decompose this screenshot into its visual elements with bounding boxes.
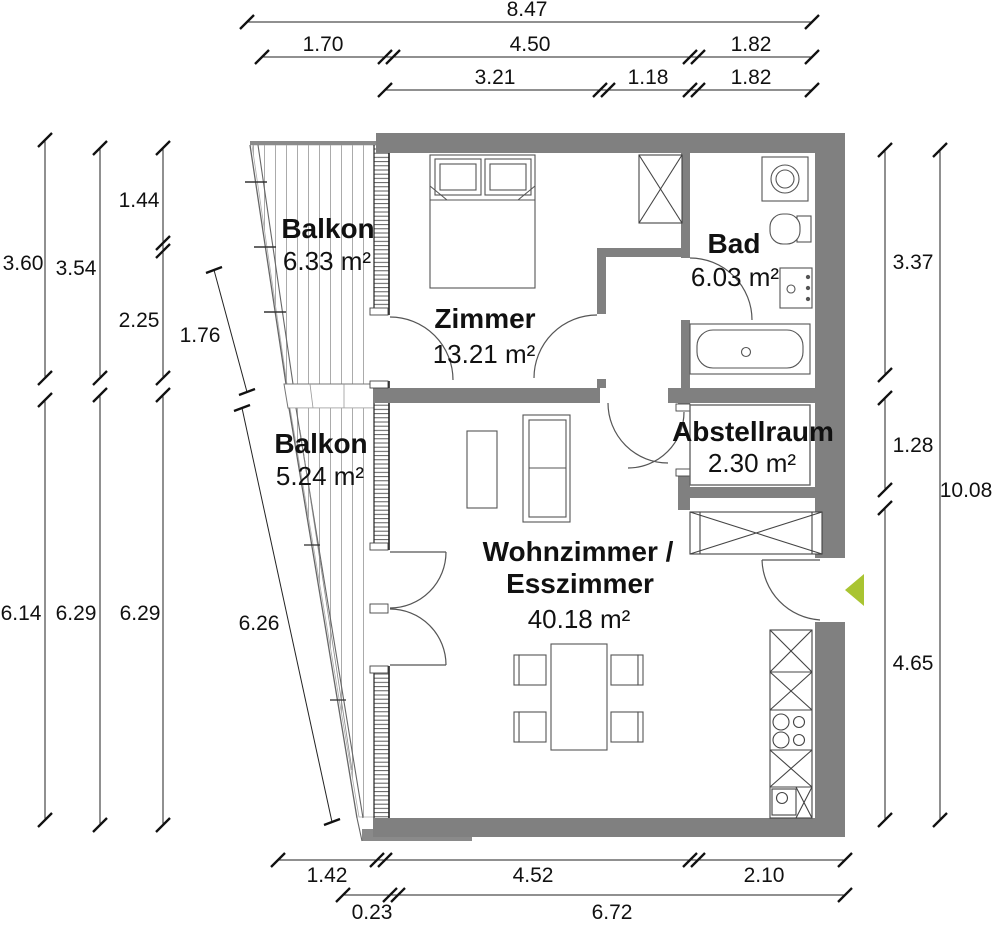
room-label-wohnzimmer-1: Wohnzimmer /	[483, 536, 674, 567]
floor-plan-drawing: Balkon 6.33 m² Zimmer 13.21 m² Bad 6.03 …	[0, 0, 999, 927]
stove-burner	[773, 732, 789, 748]
room-label-bad: Bad	[708, 228, 761, 259]
wall-hall-horizontal	[597, 248, 688, 257]
wall-bottom	[373, 818, 845, 837]
dim-left-4: 6.14	[1, 602, 42, 625]
hall-zimmer-door	[534, 315, 597, 378]
hall-living-door	[608, 403, 668, 463]
room-area-abstellraum: 2.30 m²	[708, 448, 796, 478]
washing-machine	[762, 157, 808, 201]
dim-left-6: 6.29	[120, 602, 161, 625]
french-door-upper	[390, 552, 446, 608]
room-area-bad: 6.03 m²	[691, 262, 779, 292]
dim-left-3b: 2.25	[119, 309, 160, 332]
wall-top	[376, 133, 845, 153]
dim-left-2: 3.54	[56, 257, 97, 280]
wall-abstellraum-bottom	[678, 487, 830, 498]
dim-left-diag-bottom: 6.26	[239, 612, 280, 635]
chair	[519, 712, 546, 742]
french-door-lower	[390, 609, 446, 665]
toilet	[770, 214, 811, 244]
side-table	[467, 431, 497, 508]
dining-set	[514, 644, 643, 750]
floor-plan-canvas: Balkon 6.33 m² Zimmer 13.21 m² Bad 6.03 …	[0, 0, 999, 927]
dim-top-r3-2: 1.82	[731, 66, 772, 89]
chair	[611, 655, 638, 685]
shaft-box	[639, 155, 682, 223]
dim-bottom-r1-0: 1.42	[307, 864, 348, 887]
room-label-balkon-top: Balkon	[281, 213, 374, 244]
dim-top-r2-0: 1.70	[303, 33, 344, 56]
dim-left-1: 3.60	[3, 252, 44, 275]
balcony-divider	[284, 384, 376, 408]
room-label-abstellraum: Abstellraum	[672, 416, 834, 447]
entrance-door	[762, 560, 820, 620]
dim-right-2: 1.28	[893, 434, 934, 457]
stove-burner	[773, 714, 789, 730]
dim-right-3: 4.65	[893, 652, 934, 675]
stove-burner	[794, 717, 805, 728]
stove-burner	[794, 735, 805, 746]
room-label-zimmer: Zimmer	[434, 303, 535, 334]
dim-top-total: 8.47	[507, 0, 548, 21]
dim-right-1: 3.37	[893, 251, 934, 274]
dim-top-r3-1: 1.18	[628, 66, 669, 89]
room-area-wohnzimmer: 40.18 m²	[528, 604, 631, 634]
room-label-wohnzimmer-2: Esszimmer	[506, 568, 654, 599]
dim-bottom-r2-0: 0.23	[352, 901, 393, 924]
room-area-balkon-bottom: 5.24 m²	[276, 461, 364, 491]
kitchen-units	[770, 630, 812, 818]
wall-middle-right	[668, 388, 845, 403]
dim-bottom-r1-2: 2.10	[744, 864, 785, 887]
chair	[519, 655, 546, 685]
dim-left-5: 6.29	[56, 602, 97, 625]
room-label-balkon-bottom: Balkon	[274, 428, 367, 459]
room-area-zimmer: 13.21 m²	[433, 339, 536, 369]
chair	[611, 712, 638, 742]
dim-top-r2-1: 4.50	[510, 33, 551, 56]
sofa	[523, 415, 570, 522]
dim-right-total: 10.08	[940, 479, 993, 502]
dim-top-r3-0: 3.21	[475, 66, 516, 89]
dim-bottom-r1-1: 4.52	[513, 864, 554, 887]
dim-bottom-r2-1: 6.72	[592, 901, 633, 924]
dim-left-3a: 1.44	[119, 189, 160, 212]
window-band	[374, 145, 389, 818]
sink	[780, 268, 812, 308]
entrance-arrow	[845, 574, 864, 606]
wall-bad-left-lower	[681, 320, 690, 388]
dim-top-r2-2: 1.82	[731, 33, 772, 56]
bathtub	[690, 324, 810, 374]
dim-left-diag-top: 1.76	[180, 324, 221, 347]
wall-middle-left	[373, 388, 600, 403]
wardrobe	[690, 512, 822, 554]
wall-right-lower	[815, 622, 845, 837]
room-area-balkon-top: 6.33 m²	[283, 246, 371, 276]
upper-balcony-top-edge	[250, 141, 377, 145]
bed	[430, 155, 535, 288]
dining-table	[551, 644, 607, 750]
